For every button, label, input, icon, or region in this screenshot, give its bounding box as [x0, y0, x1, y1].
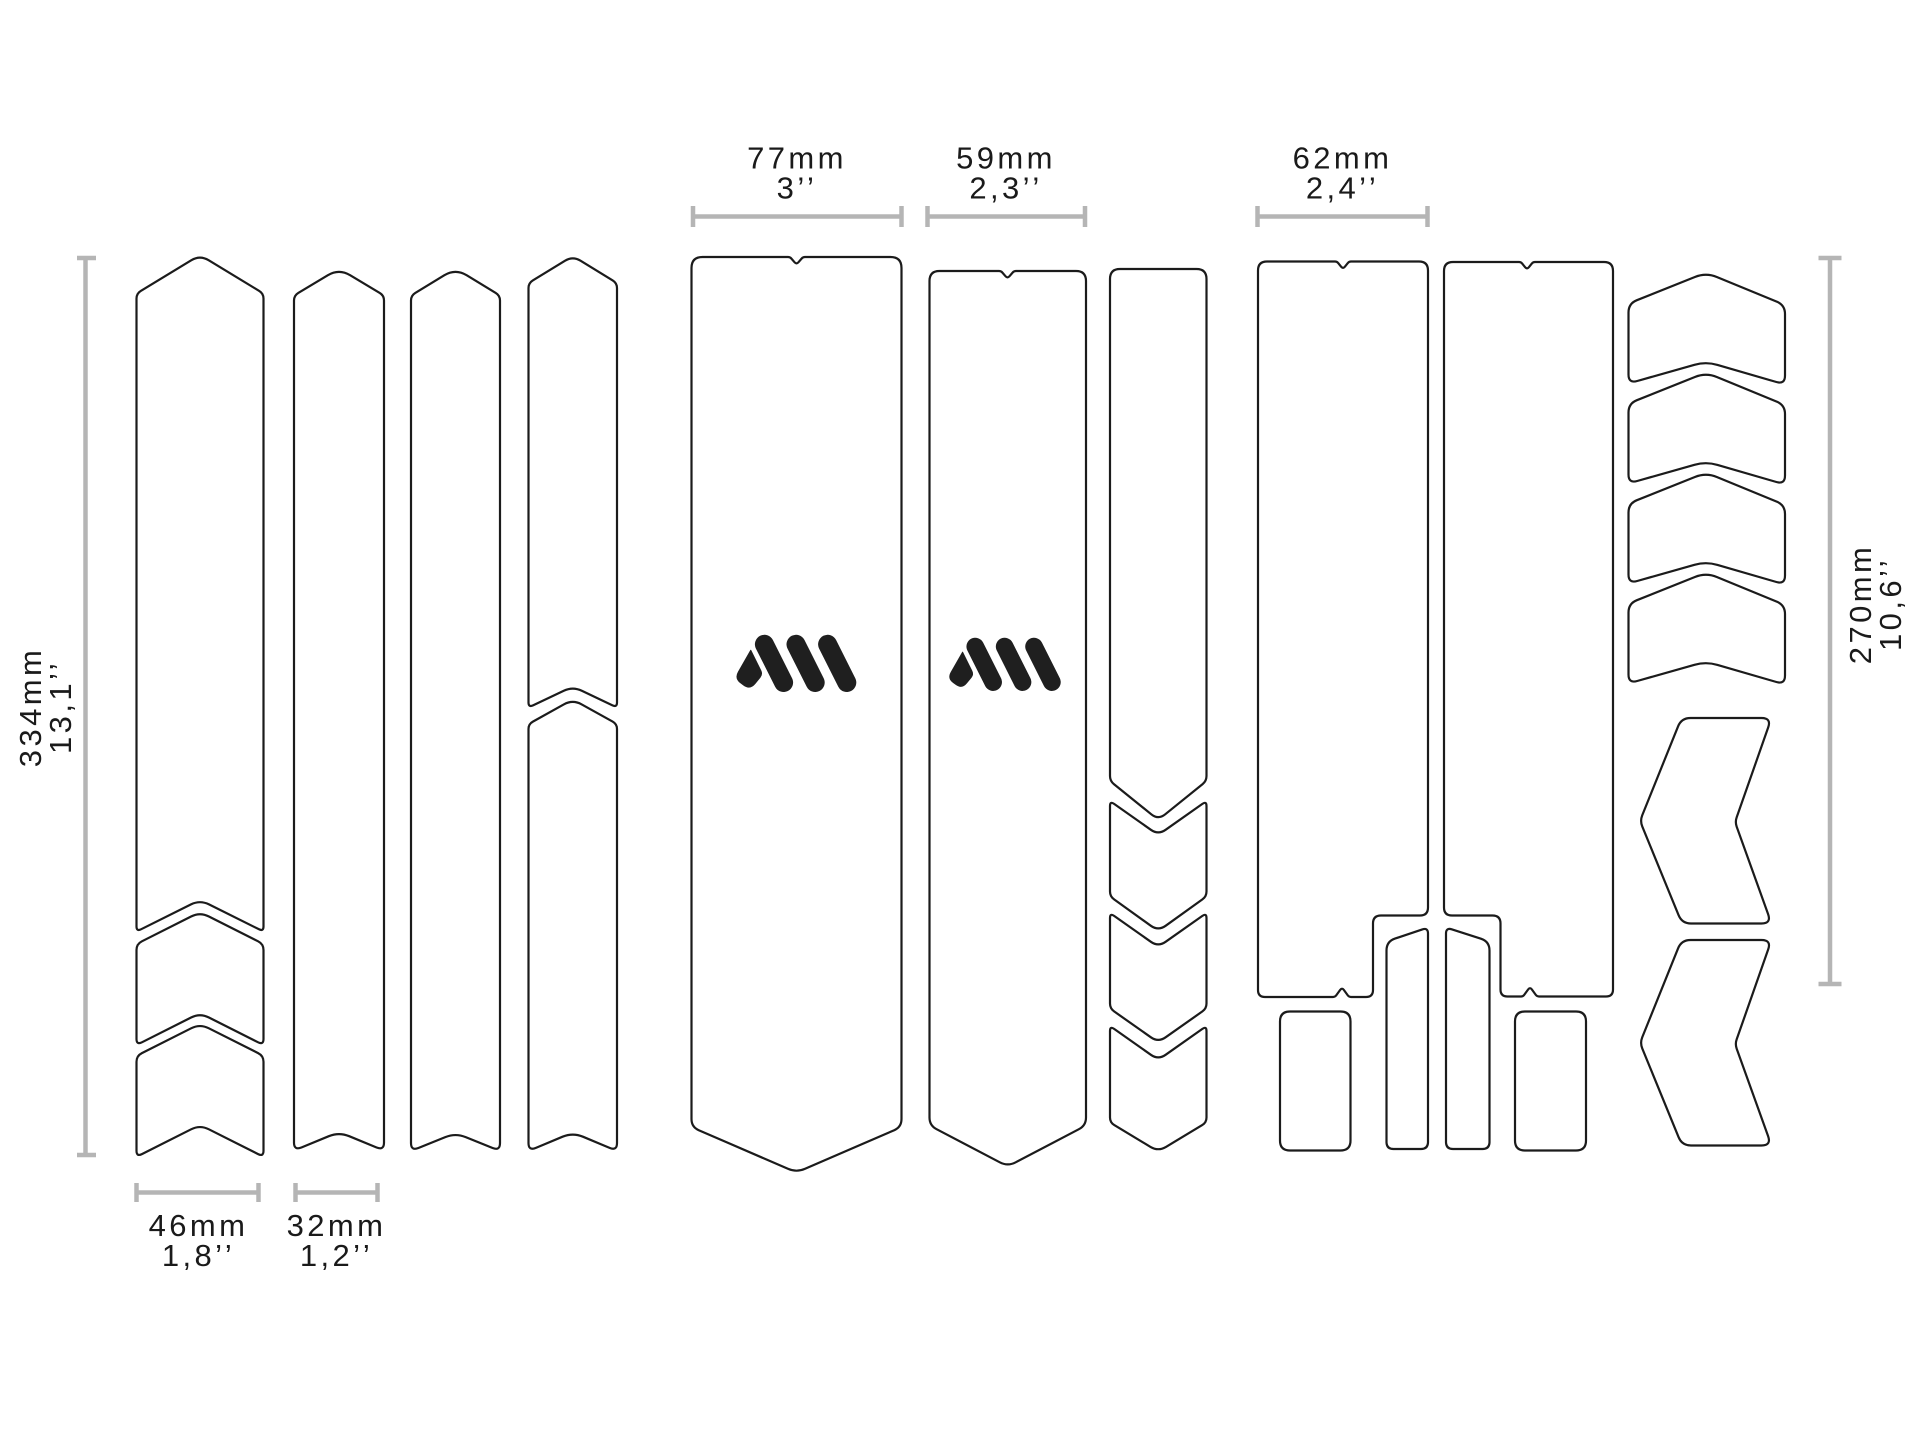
svg-text:10,6’’: 10,6’’: [1873, 557, 1908, 651]
svg-text:1,2’’: 1,2’’: [300, 1238, 373, 1273]
svg-text:13,1’’: 13,1’’: [43, 660, 78, 754]
svg-text:2,4’’: 2,4’’: [1306, 171, 1379, 206]
svg-text:3’’: 3’’: [777, 171, 818, 206]
svg-text:1,8’’: 1,8’’: [162, 1238, 235, 1273]
svg-text:2,3’’: 2,3’’: [969, 171, 1042, 206]
